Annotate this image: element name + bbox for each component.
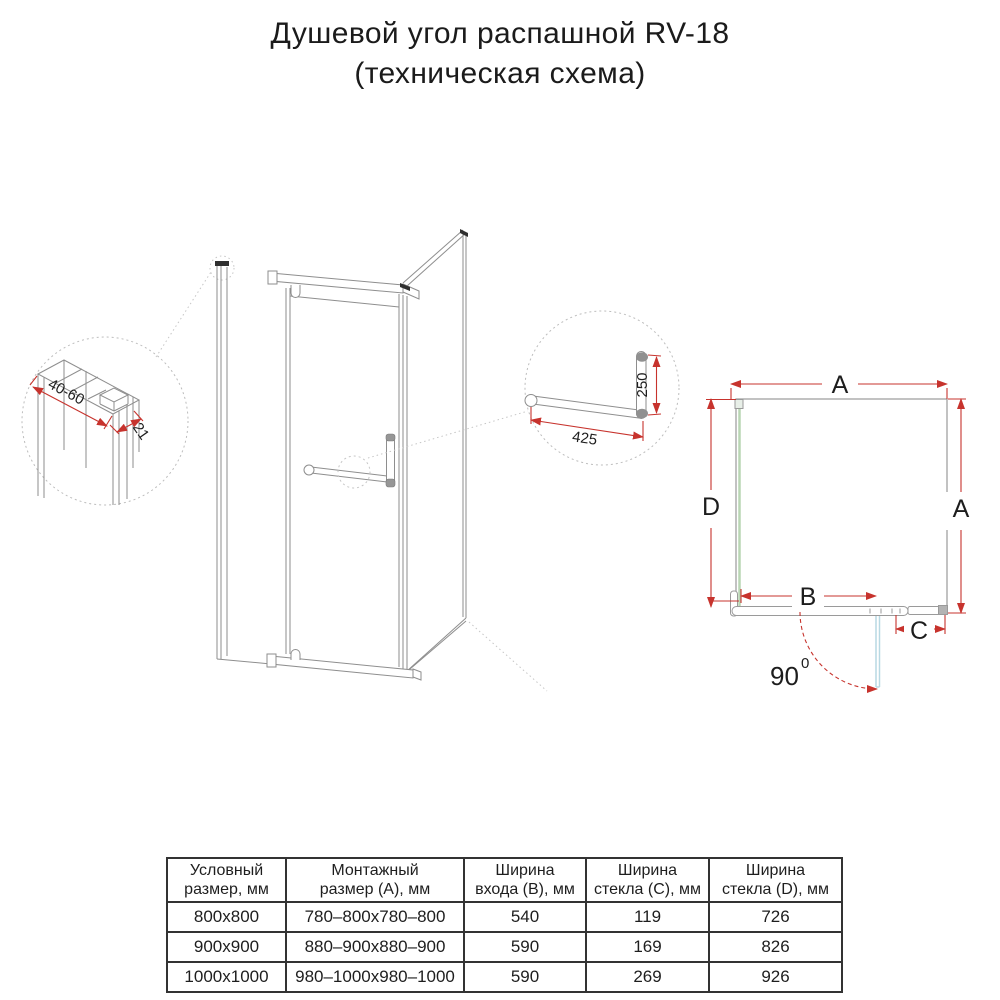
door-swing-arc (800, 612, 877, 689)
table-header-row: Условный размер, мм Монтажный размер (А)… (167, 858, 842, 902)
plan-dim-c-panel: C (910, 617, 928, 645)
table-cell: 590 (464, 932, 586, 962)
table-cell: 726 (709, 902, 842, 932)
plan-footprint (736, 399, 947, 613)
profile-leader-line (156, 272, 211, 357)
table-cell: 540 (464, 902, 586, 932)
isometric-view (215, 229, 547, 691)
table-cell: 800x800 (167, 902, 286, 932)
plan-open-door (876, 616, 880, 687)
table-cell: 169 (586, 932, 709, 962)
plan-dimension-labels: A A D B C 90 0 (696, 370, 976, 691)
header-entry-width: Ширина входа (В), мм (464, 858, 586, 902)
door-angle-label: 90 (770, 661, 799, 691)
profile-width-dim-label: 40-60 (45, 376, 87, 409)
table-cell: 980–1000x980–1000 (286, 962, 464, 992)
iso-frame-lines (217, 230, 466, 680)
profile-callout-circle (210, 256, 234, 280)
plan-dim-a-right: A (953, 495, 970, 523)
floor-guide-dotted (469, 622, 547, 691)
table-cell: 900x900 (167, 932, 286, 962)
header-glass-c-width: Ширина стекла (С), мм (586, 858, 709, 902)
table-cell: 880–900x880–900 (286, 932, 464, 962)
header-mounting-size: Монтажный размер (А), мм (286, 858, 464, 902)
iso-handle (304, 434, 395, 488)
plan-dim-d-left: D (702, 493, 720, 521)
door-angle-superscript: 0 (801, 655, 809, 672)
size-table: Условный размер, мм Монтажный размер (А)… (166, 857, 843, 993)
handle-detail-circle: 425 250 (525, 311, 679, 465)
table-row: 800x800 780–800x780–800 540 119 726 (167, 902, 842, 932)
plan-view: A A D B C 90 0 (696, 370, 976, 691)
handle-length-dim-label: 425 (571, 428, 598, 449)
table-cell: 269 (586, 962, 709, 992)
table-cell: 826 (709, 932, 842, 962)
header-glass-d-width: Ширина стекла (D), мм (709, 858, 842, 902)
table-row: 900x900 880–900x880–900 590 169 826 (167, 932, 842, 962)
table-cell: 780–800x780–800 (286, 902, 464, 932)
technical-drawing: 40-60 21 (0, 0, 1000, 1000)
header-nominal-size: Условный размер, мм (167, 858, 286, 902)
table-row: 1000x1000 980–1000x980–1000 590 269 926 (167, 962, 842, 992)
table-cell: 590 (464, 962, 586, 992)
profile-detail-circle: 40-60 21 (22, 337, 188, 505)
table-cell: 1000x1000 (167, 962, 286, 992)
plan-frame-parts (731, 400, 948, 617)
handle-height-dim-label: 250 (634, 372, 651, 397)
plan-dim-b-entry: B (800, 583, 817, 611)
plan-dim-a-top: A (832, 371, 849, 399)
table-cell: 119 (586, 902, 709, 932)
table-cell: 926 (709, 962, 842, 992)
handle-drawing (525, 352, 648, 419)
